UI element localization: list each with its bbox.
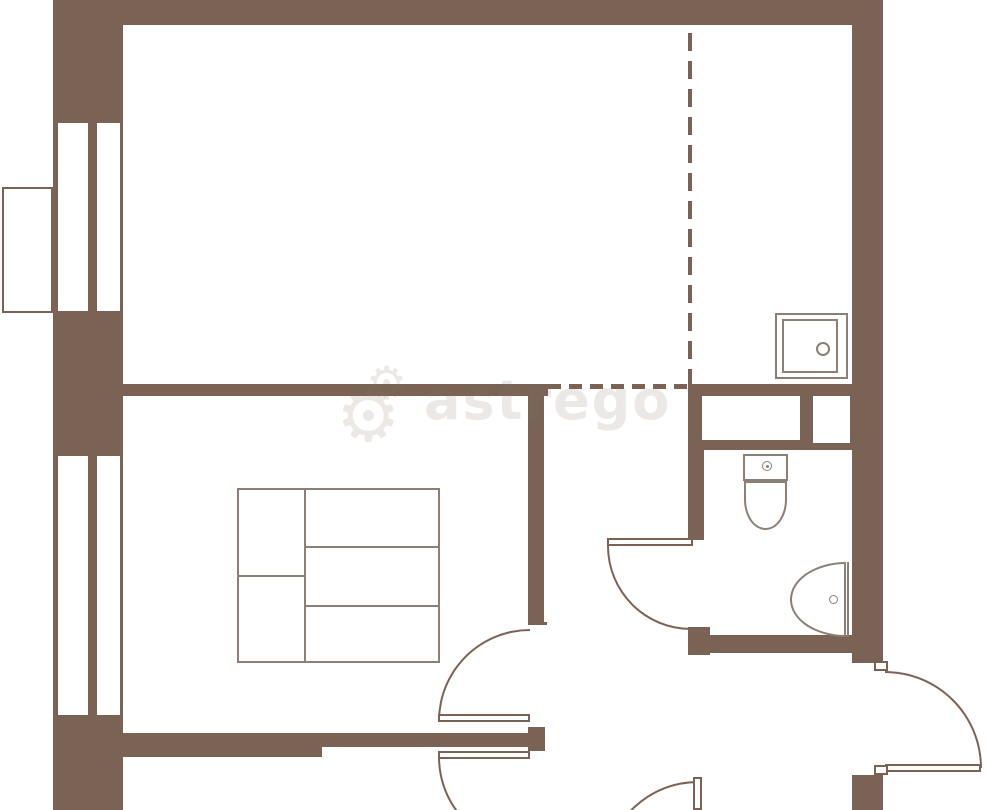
lower-room-door-leaf — [438, 751, 530, 759]
bedroom-bottom-wall-thin — [322, 733, 545, 747]
hall-wall-jamb — [528, 622, 547, 625]
bed-blanket-line-1 — [305, 546, 439, 548]
outer-wall-left-lower — [53, 715, 123, 810]
bed-pillow-divider — [238, 575, 305, 577]
bedroom-door-arc — [438, 629, 530, 721]
window-upper-pane-left — [58, 123, 88, 311]
zone-divider-dashed-horizontal — [548, 384, 688, 389]
window-lower-pane-left — [58, 456, 88, 715]
shower-drain — [816, 342, 830, 356]
duct-opening-right — [813, 396, 850, 443]
bathroom-bottom-wall — [690, 635, 852, 653]
bottom-door-arc — [604, 781, 698, 810]
balcony-outline — [2, 187, 53, 313]
window-upper-pane-right — [97, 123, 120, 311]
duct-opening-left — [702, 396, 800, 440]
bedroom-top-wall — [118, 384, 548, 396]
entrance-door-jamb-bottom — [874, 765, 888, 775]
sink-drain — [829, 595, 838, 604]
floor-plan: ⚙ ⚙ astrego — [0, 0, 986, 810]
watermark-text: astrego — [424, 374, 671, 428]
entrance-door-leaf — [885, 764, 981, 772]
zone-divider-dashed-vertical — [688, 33, 692, 384]
entrance-door-jamb-top — [874, 661, 888, 671]
outer-wall-left-middle — [53, 311, 123, 456]
lower-room-door-arc — [438, 757, 530, 810]
bathroom-door-leaf — [607, 538, 693, 546]
toilet-bowl — [744, 481, 787, 530]
bottom-door-leaf — [693, 777, 702, 810]
outer-wall-left-upper — [53, 0, 123, 123]
sink-wall-edge — [847, 562, 849, 637]
bathroom-left-wall — [688, 450, 704, 540]
outer-wall-top — [53, 0, 883, 25]
entrance-door-arc — [885, 671, 982, 768]
bedroom-door-leaf — [438, 714, 530, 722]
hall-wall-vertical — [528, 384, 544, 622]
gear-icon-small: ⚙ — [366, 360, 407, 406]
outer-wall-right — [852, 0, 883, 663]
toilet-flush-dot — [766, 465, 769, 468]
outer-wall-right-bottom — [852, 775, 883, 810]
bedroom-bottom-wall-thick — [118, 733, 322, 757]
bed-blanket-line-2 — [305, 605, 439, 607]
window-lower-pane-right — [97, 456, 120, 715]
bathroom-door-arc — [607, 546, 691, 630]
